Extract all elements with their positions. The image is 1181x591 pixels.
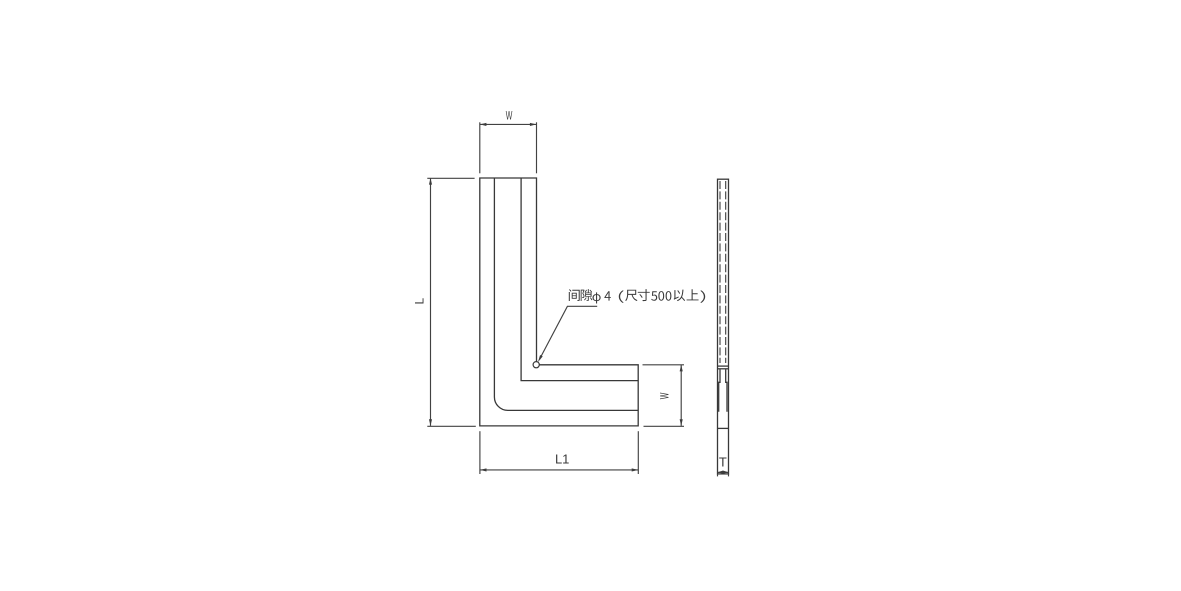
svg-text:W: W: [657, 392, 671, 399]
svg-text:L1: L1: [555, 452, 569, 467]
svg-text:L: L: [412, 298, 426, 305]
svg-text:W: W: [506, 108, 513, 122]
svg-text:T: T: [719, 455, 727, 470]
